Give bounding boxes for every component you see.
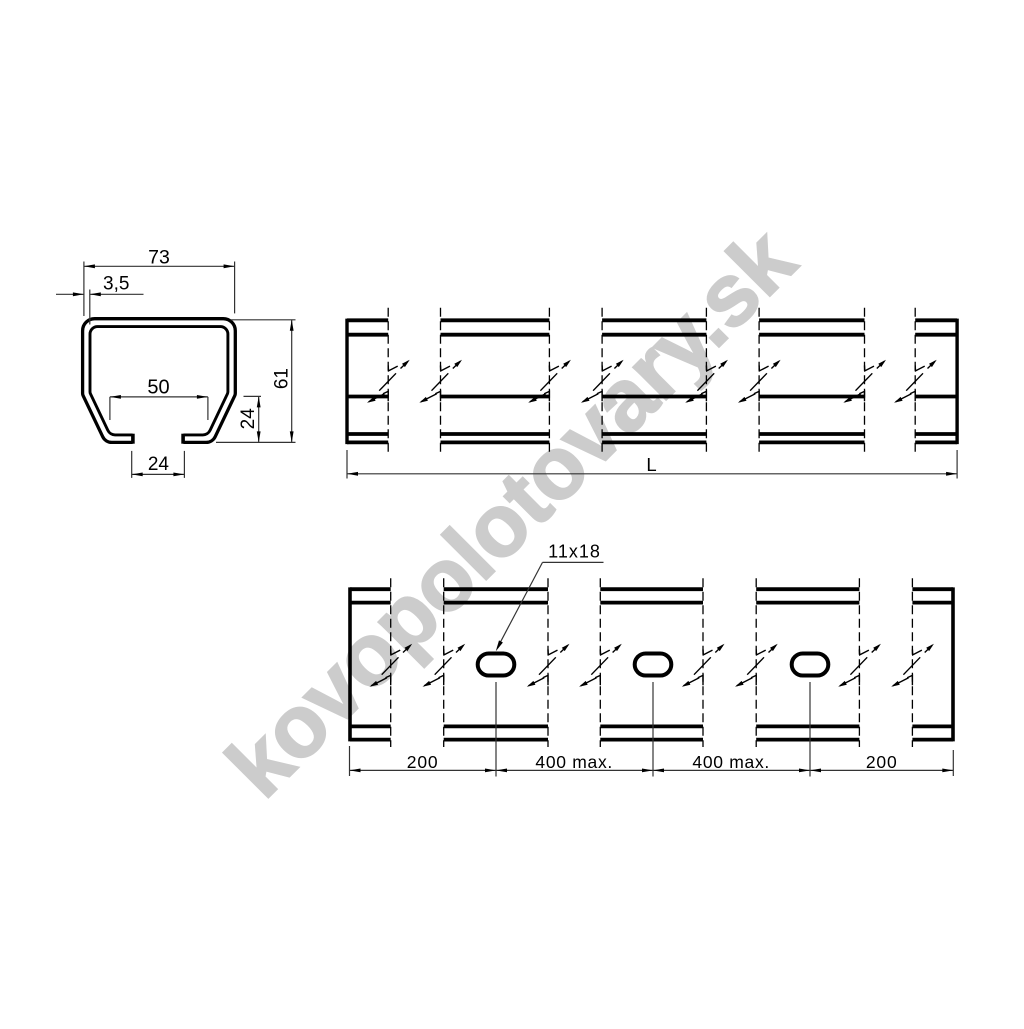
svg-text:61: 61 bbox=[272, 368, 293, 389]
svg-text:200: 200 bbox=[866, 752, 898, 772]
svg-text:73: 73 bbox=[148, 246, 170, 268]
svg-text:400 max.: 400 max. bbox=[535, 752, 613, 772]
svg-text:24: 24 bbox=[238, 408, 259, 430]
svg-text:24: 24 bbox=[148, 454, 170, 475]
svg-text:200: 200 bbox=[407, 752, 439, 772]
svg-text:50: 50 bbox=[147, 376, 169, 398]
svg-text:L: L bbox=[646, 454, 656, 475]
svg-text:11x18: 11x18 bbox=[548, 542, 601, 562]
svg-text:3,5: 3,5 bbox=[103, 274, 129, 295]
svg-text:400 max.: 400 max. bbox=[692, 752, 770, 772]
